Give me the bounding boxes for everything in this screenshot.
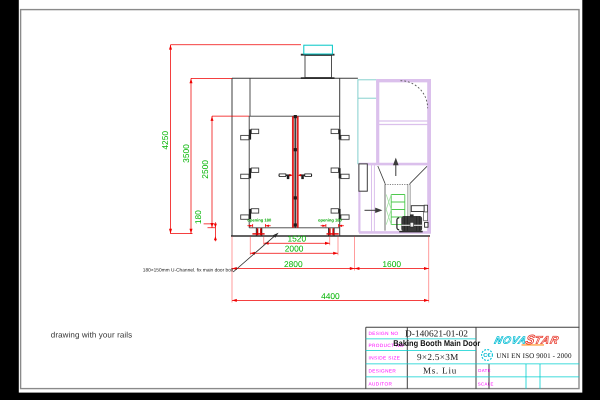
svg-text:INSIDE SIZE: INSIDE SIZE (369, 355, 401, 360)
svg-text:4400: 4400 (321, 291, 340, 301)
svg-text:Ms. Liu: Ms. Liu (423, 366, 457, 376)
svg-text:9×2.5×3M: 9×2.5×3M (417, 352, 459, 362)
svg-text:UNI EN ISO 9001 - 2000: UNI EN ISO 9001 - 2000 (496, 352, 572, 360)
svg-text:2000: 2000 (285, 244, 304, 254)
svg-text:opening 180: opening 180 (318, 217, 343, 222)
svg-text:Baking Booth Main Door: Baking Booth Main Door (393, 338, 481, 348)
svg-text:DESIGN NO: DESIGN NO (369, 331, 399, 336)
svg-text:AUDITOR: AUDITOR (369, 382, 393, 387)
svg-text:DATE: DATE (478, 368, 491, 373)
svg-text:3500: 3500 (181, 144, 191, 163)
svg-text:SCALE: SCALE (478, 381, 494, 386)
svg-text:opening 180: opening 180 (247, 217, 272, 222)
svg-text:180: 180 (193, 210, 203, 224)
svg-text:DESIGNER: DESIGNER (369, 369, 397, 374)
svg-text:drawing with your rails: drawing with your rails (51, 330, 132, 339)
svg-text:C€: C€ (483, 352, 491, 359)
svg-text:2800: 2800 (284, 259, 303, 269)
svg-text:4250: 4250 (160, 131, 170, 150)
svg-text:180×150mm U-Channel. fix main: 180×150mm U-Channel. fix main door bolt (143, 267, 234, 273)
svg-text:1600: 1600 (382, 259, 401, 269)
svg-text:2500: 2500 (200, 160, 210, 179)
svg-text:1520: 1520 (287, 234, 306, 244)
